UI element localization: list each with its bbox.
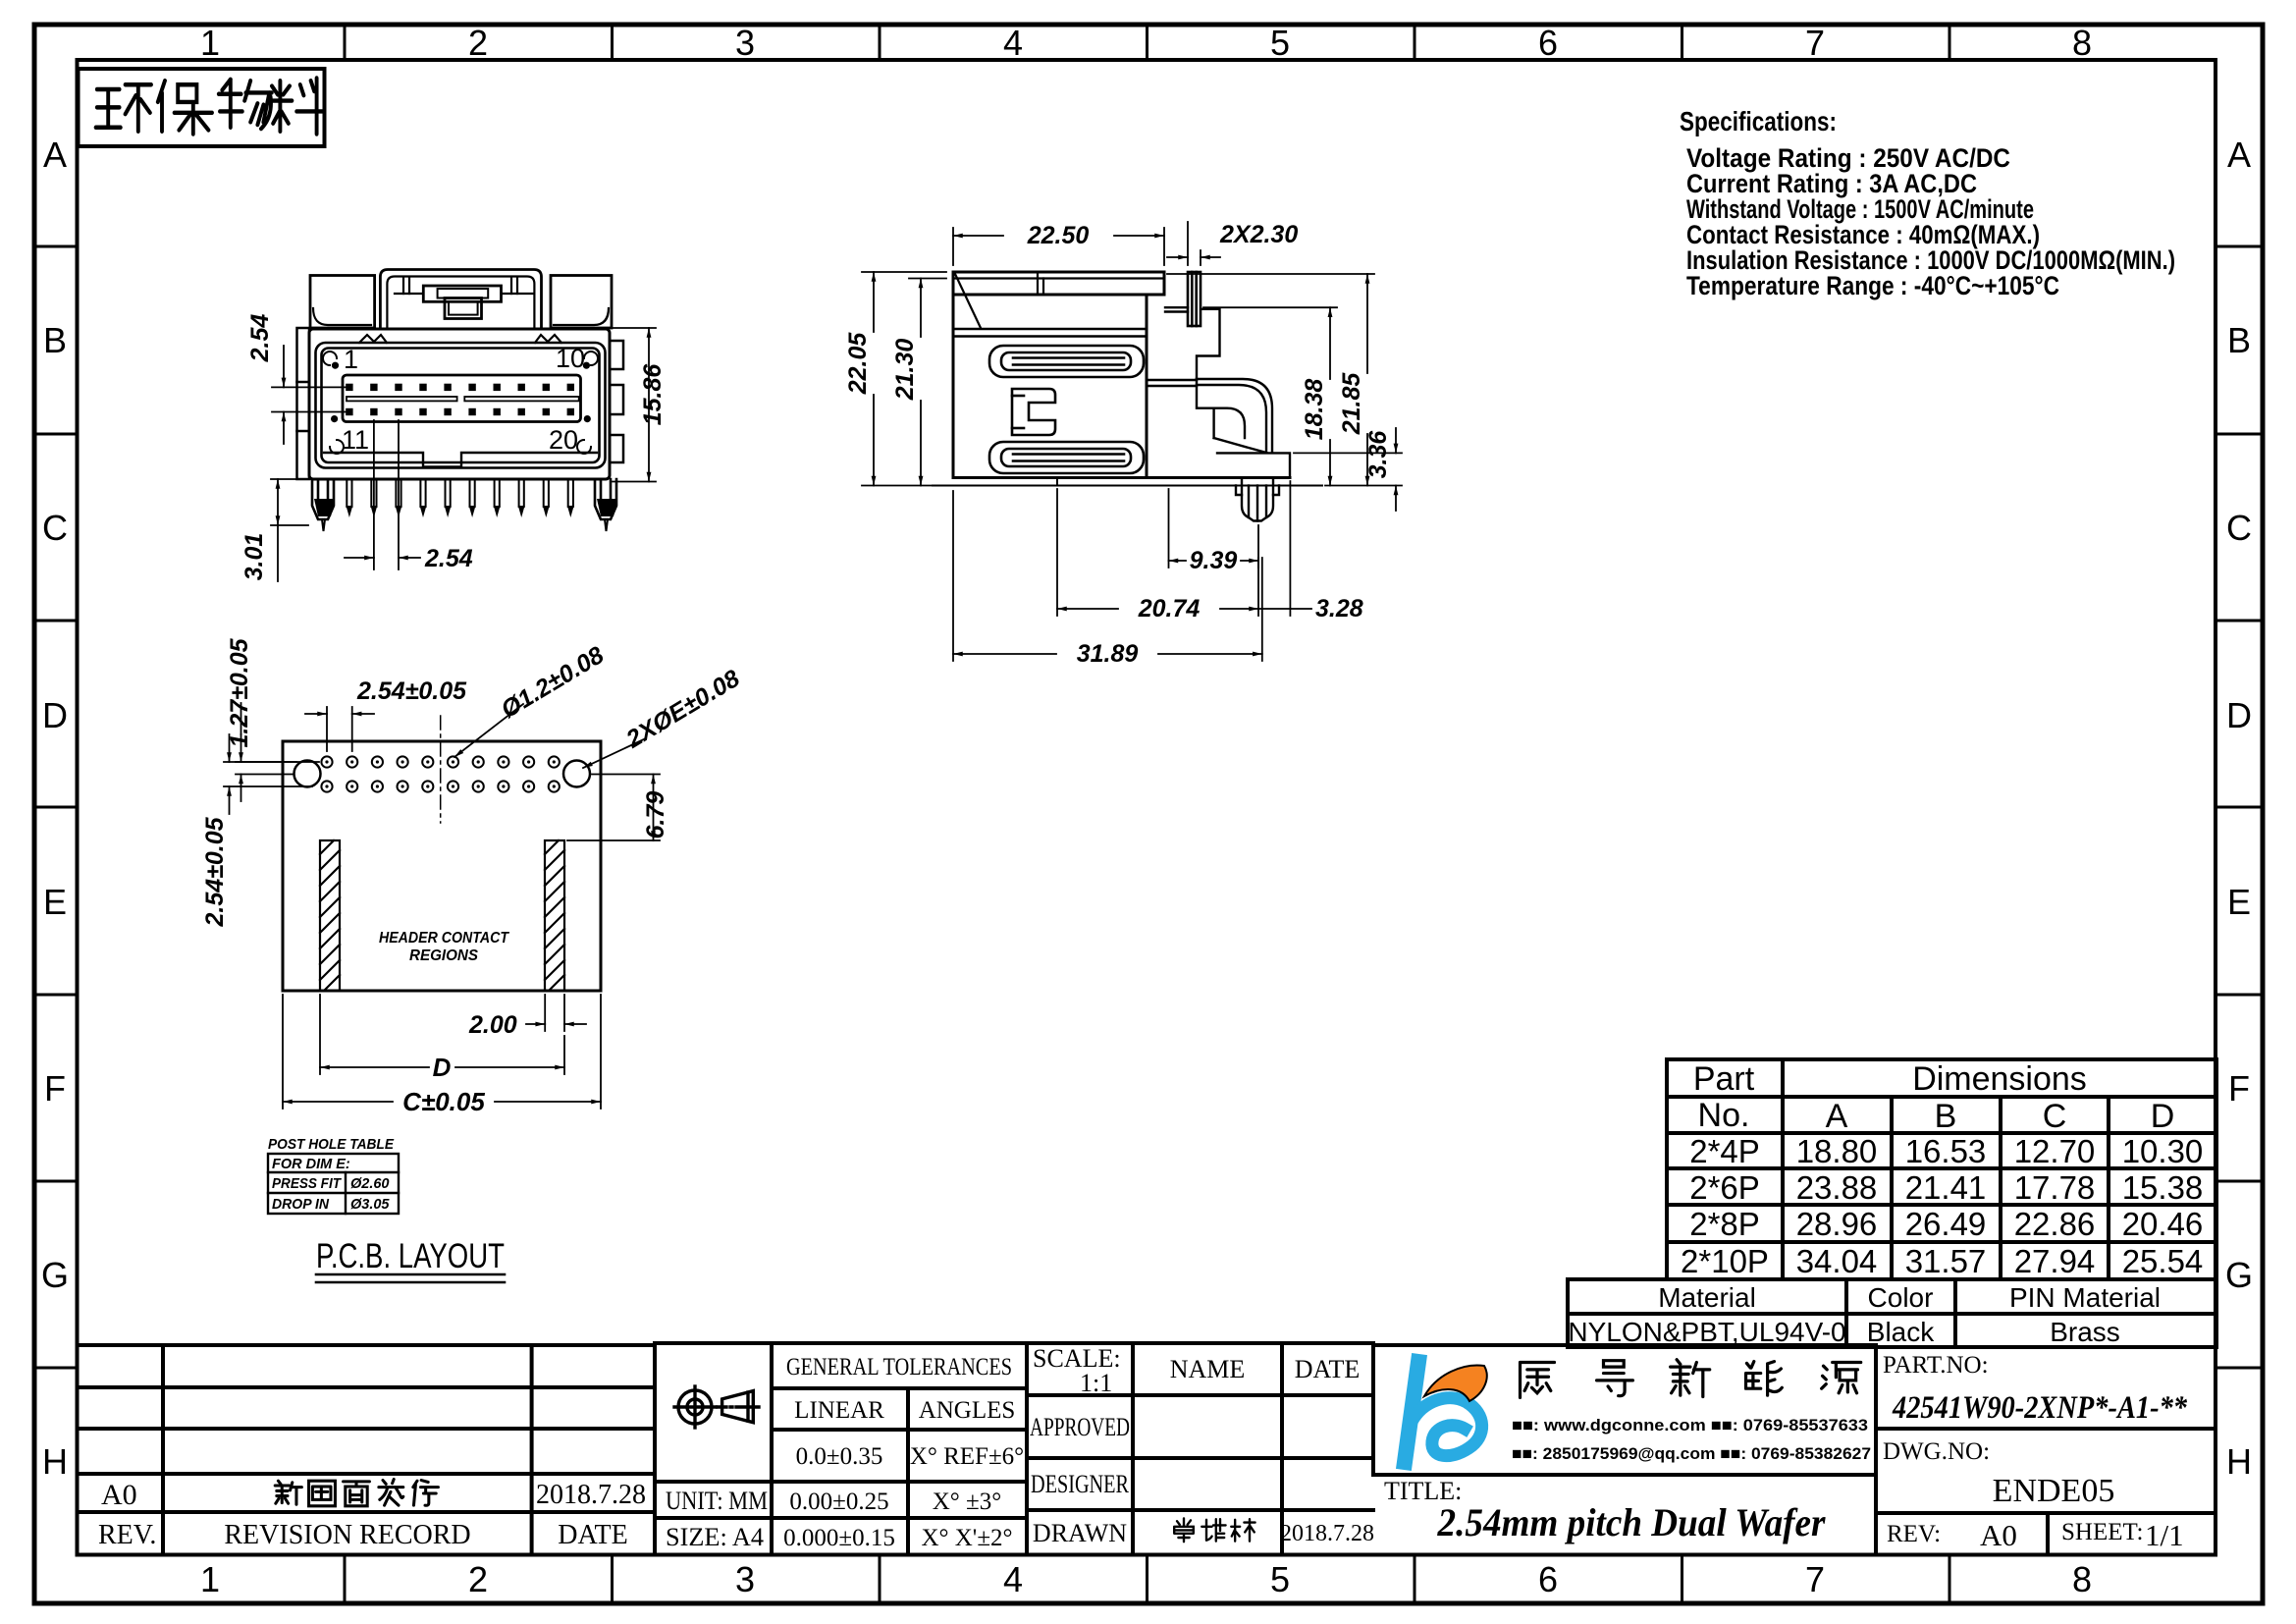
svg-text:Ø3.05: Ø3.05	[350, 1197, 390, 1213]
svg-text:18.38: 18.38	[1301, 379, 1328, 441]
svg-text:34.04: 34.04	[1796, 1243, 1878, 1279]
svg-text:2*8P: 2*8P	[1689, 1206, 1760, 1242]
svg-text:10.30: 10.30	[2122, 1133, 2204, 1169]
svg-text:A: A	[43, 135, 67, 175]
svg-text:23.88: 23.88	[1796, 1169, 1878, 1206]
svg-text:0.000±0.15: 0.000±0.15	[783, 1525, 895, 1551]
svg-text:21.85: 21.85	[1338, 372, 1365, 436]
svg-text:PIN Material: PIN Material	[2009, 1282, 2161, 1313]
svg-text:REVISION RECORD: REVISION RECORD	[224, 1520, 470, 1550]
svg-text:LINEAR: LINEAR	[794, 1397, 884, 1424]
svg-text:G: G	[2225, 1255, 2253, 1295]
svg-text:2: 2	[468, 1559, 488, 1599]
svg-text:D: D	[433, 1053, 452, 1082]
svg-text:6.79: 6.79	[642, 791, 669, 839]
svg-text:A0: A0	[1980, 1518, 2017, 1552]
svg-text:H: H	[42, 1441, 68, 1482]
svg-text:DRAWN: DRAWN	[1033, 1519, 1127, 1547]
svg-text:2*10P: 2*10P	[1681, 1243, 1769, 1279]
svg-text:DROP IN: DROP IN	[272, 1197, 330, 1213]
svg-text:1: 1	[344, 345, 358, 374]
svg-text:42541W90-2XNP*-A1-**: 42541W90-2XNP*-A1-**	[1892, 1390, 2187, 1426]
svg-text:APPROVED: APPROVED	[1030, 1413, 1130, 1441]
svg-text:20: 20	[549, 425, 578, 455]
svg-text:A: A	[2227, 135, 2251, 175]
svg-text:1.27±0.05: 1.27±0.05	[226, 637, 253, 747]
svg-text:11: 11	[342, 425, 369, 455]
svg-text:NAME: NAME	[1170, 1355, 1246, 1383]
svg-text:12.70: 12.70	[2014, 1133, 2096, 1169]
svg-text:22.86: 22.86	[2014, 1206, 2096, 1242]
svg-text:0.0±0.35: 0.0±0.35	[796, 1443, 883, 1470]
svg-text:7: 7	[1805, 1559, 1825, 1599]
svg-text:ANGLES: ANGLES	[919, 1397, 1016, 1424]
svg-text:HEADER CONTACT: HEADER CONTACT	[379, 930, 509, 947]
svg-text:FOR DIM E:: FOR DIM E:	[272, 1157, 350, 1172]
svg-text:22.50: 22.50	[1027, 222, 1090, 249]
svg-text:Temperature Range : -40°C~+105: Temperature Range : -40°C~+105°C	[1686, 271, 2059, 300]
svg-text:A0: A0	[101, 1479, 137, 1511]
svg-text:2.54±0.05: 2.54±0.05	[201, 816, 229, 927]
svg-text:5: 5	[1270, 23, 1290, 63]
svg-text:25.54: 25.54	[2122, 1243, 2204, 1279]
svg-text:8: 8	[2072, 1559, 2092, 1599]
svg-text:21.41: 21.41	[1905, 1169, 1987, 1206]
svg-text:D: D	[2226, 695, 2252, 735]
svg-text:2.54±0.05: 2.54±0.05	[356, 677, 467, 705]
svg-text:GENERAL TOLERANCES: GENERAL TOLERANCES	[786, 1354, 1012, 1380]
svg-text:B: B	[2227, 320, 2251, 360]
svg-text:27.94: 27.94	[2014, 1243, 2096, 1279]
svg-text:3.01: 3.01	[240, 533, 268, 581]
svg-text:17.78: 17.78	[2014, 1169, 2096, 1206]
svg-text:2*6P: 2*6P	[1689, 1169, 1760, 1206]
svg-text:SIZE: A4: SIZE: A4	[666, 1523, 764, 1551]
svg-text:10: 10	[556, 344, 585, 373]
svg-text:5: 5	[1270, 1559, 1290, 1599]
svg-text:31.57: 31.57	[1905, 1243, 1987, 1279]
svg-text:2.00: 2.00	[468, 1011, 517, 1039]
svg-text:1: 1	[200, 23, 220, 63]
svg-text:28.96: 28.96	[1796, 1206, 1878, 1242]
svg-text:8: 8	[2072, 23, 2092, 63]
svg-text:D: D	[42, 695, 68, 735]
svg-text:F: F	[2228, 1068, 2250, 1109]
svg-text:6: 6	[1538, 23, 1558, 63]
svg-text:Specifications:: Specifications:	[1680, 106, 1837, 136]
svg-text:Ø2.60: Ø2.60	[350, 1176, 390, 1192]
svg-text:X° REF±6°: X° REF±6°	[910, 1443, 1024, 1470]
svg-text:Brass: Brass	[2050, 1317, 2120, 1347]
svg-text:18.80: 18.80	[1796, 1133, 1878, 1169]
svg-text:2.54: 2.54	[424, 545, 473, 572]
svg-text:C: C	[42, 508, 68, 548]
svg-text:SHEET:: SHEET:	[2061, 1519, 2143, 1545]
svg-text:POST HOLE TABLE: POST HOLE TABLE	[268, 1136, 395, 1153]
svg-text:C: C	[2226, 508, 2252, 548]
svg-text:C: C	[2043, 1098, 2067, 1135]
svg-text:3.36: 3.36	[1364, 430, 1392, 479]
svg-text:0.00±0.25: 0.00±0.25	[789, 1489, 888, 1515]
svg-text:UNIT: MM: UNIT: MM	[666, 1487, 768, 1515]
svg-text:Part: Part	[1693, 1060, 1755, 1098]
svg-text:2X2.30: 2X2.30	[1219, 221, 1298, 248]
svg-text:22.05: 22.05	[844, 332, 872, 396]
svg-text:2*4P: 2*4P	[1689, 1133, 1760, 1169]
svg-text:F: F	[44, 1068, 66, 1109]
svg-text:No.: No.	[1698, 1097, 1750, 1134]
svg-text:■■: 2850175969@qq.com ■■: 0769: ■■: 2850175969@qq.com ■■: 0769-85382627	[1512, 1444, 1871, 1463]
svg-text:15.38: 15.38	[2122, 1169, 2204, 1206]
svg-text:2018.7.28: 2018.7.28	[1280, 1521, 1374, 1546]
svg-text:2: 2	[468, 23, 488, 63]
svg-text:7: 7	[1805, 23, 1825, 63]
svg-text:4: 4	[1003, 23, 1023, 63]
svg-text:ENDE05: ENDE05	[1993, 1473, 2115, 1509]
svg-text:E: E	[43, 882, 67, 922]
svg-text:1: 1	[200, 1559, 220, 1599]
svg-text:1:1: 1:1	[1080, 1369, 1112, 1397]
svg-text:REGIONS: REGIONS	[409, 947, 478, 964]
svg-text:DESIGNER: DESIGNER	[1031, 1470, 1130, 1498]
svg-text:3.28: 3.28	[1315, 595, 1363, 623]
svg-text:2018.7.28: 2018.7.28	[536, 1480, 646, 1510]
svg-text:4: 4	[1003, 1559, 1023, 1599]
svg-text:DWG.NO:: DWG.NO:	[1883, 1438, 1990, 1465]
svg-text:NYLON&PBT,UL94V-0: NYLON&PBT,UL94V-0	[1568, 1317, 1845, 1347]
svg-text:3: 3	[735, 23, 755, 63]
svg-text:3: 3	[735, 1559, 755, 1599]
svg-text:21.30: 21.30	[891, 339, 919, 402]
svg-text:9.39: 9.39	[1190, 547, 1238, 574]
svg-text:REV.: REV.	[98, 1520, 156, 1550]
svg-text:Black: Black	[1867, 1317, 1935, 1347]
svg-text:H: H	[2226, 1441, 2252, 1482]
svg-text:REV:: REV:	[1887, 1521, 1941, 1547]
svg-text:26.49: 26.49	[1905, 1206, 1987, 1242]
svg-text:A: A	[1826, 1098, 1848, 1135]
svg-text:DATE: DATE	[558, 1520, 628, 1550]
svg-text:X° X'±2°: X° X'±2°	[921, 1525, 1012, 1551]
svg-text:DATE: DATE	[1295, 1355, 1360, 1383]
svg-text:PART.NO:: PART.NO:	[1883, 1352, 1989, 1379]
svg-text:1/1: 1/1	[2145, 1518, 2184, 1552]
svg-text:■■: www.dgconne.com ■■: 0769-: ■■: www.dgconne.com ■■: 0769-85537633	[1512, 1416, 1868, 1435]
svg-text:G: G	[41, 1255, 69, 1295]
svg-text:Material: Material	[1658, 1282, 1756, 1313]
svg-text:2.54mm pitch Dual Wafer: 2.54mm pitch Dual Wafer	[1437, 1500, 1826, 1544]
svg-text:X° ±3°: X° ±3°	[933, 1489, 1002, 1515]
svg-text:B: B	[43, 320, 67, 360]
svg-text:B: B	[1935, 1098, 1957, 1135]
svg-text:PRESS FIT: PRESS FIT	[272, 1176, 342, 1192]
svg-text:2.54: 2.54	[246, 314, 274, 363]
svg-text:31.89: 31.89	[1077, 640, 1139, 668]
svg-text:Color: Color	[1868, 1282, 1934, 1313]
svg-text:D: D	[2151, 1098, 2175, 1135]
svg-text:C±0.05: C±0.05	[402, 1087, 485, 1116]
svg-text:E: E	[2227, 882, 2251, 922]
svg-text:Dimensions: Dimensions	[1912, 1060, 2087, 1098]
svg-text:20.74: 20.74	[1138, 595, 1201, 623]
svg-text:6: 6	[1538, 1559, 1558, 1599]
svg-text:20.46: 20.46	[2122, 1206, 2204, 1242]
svg-text:P.C.B. LAYOUT: P.C.B. LAYOUT	[316, 1237, 505, 1275]
svg-text:15.86: 15.86	[639, 363, 667, 426]
svg-text:16.53: 16.53	[1905, 1133, 1987, 1169]
